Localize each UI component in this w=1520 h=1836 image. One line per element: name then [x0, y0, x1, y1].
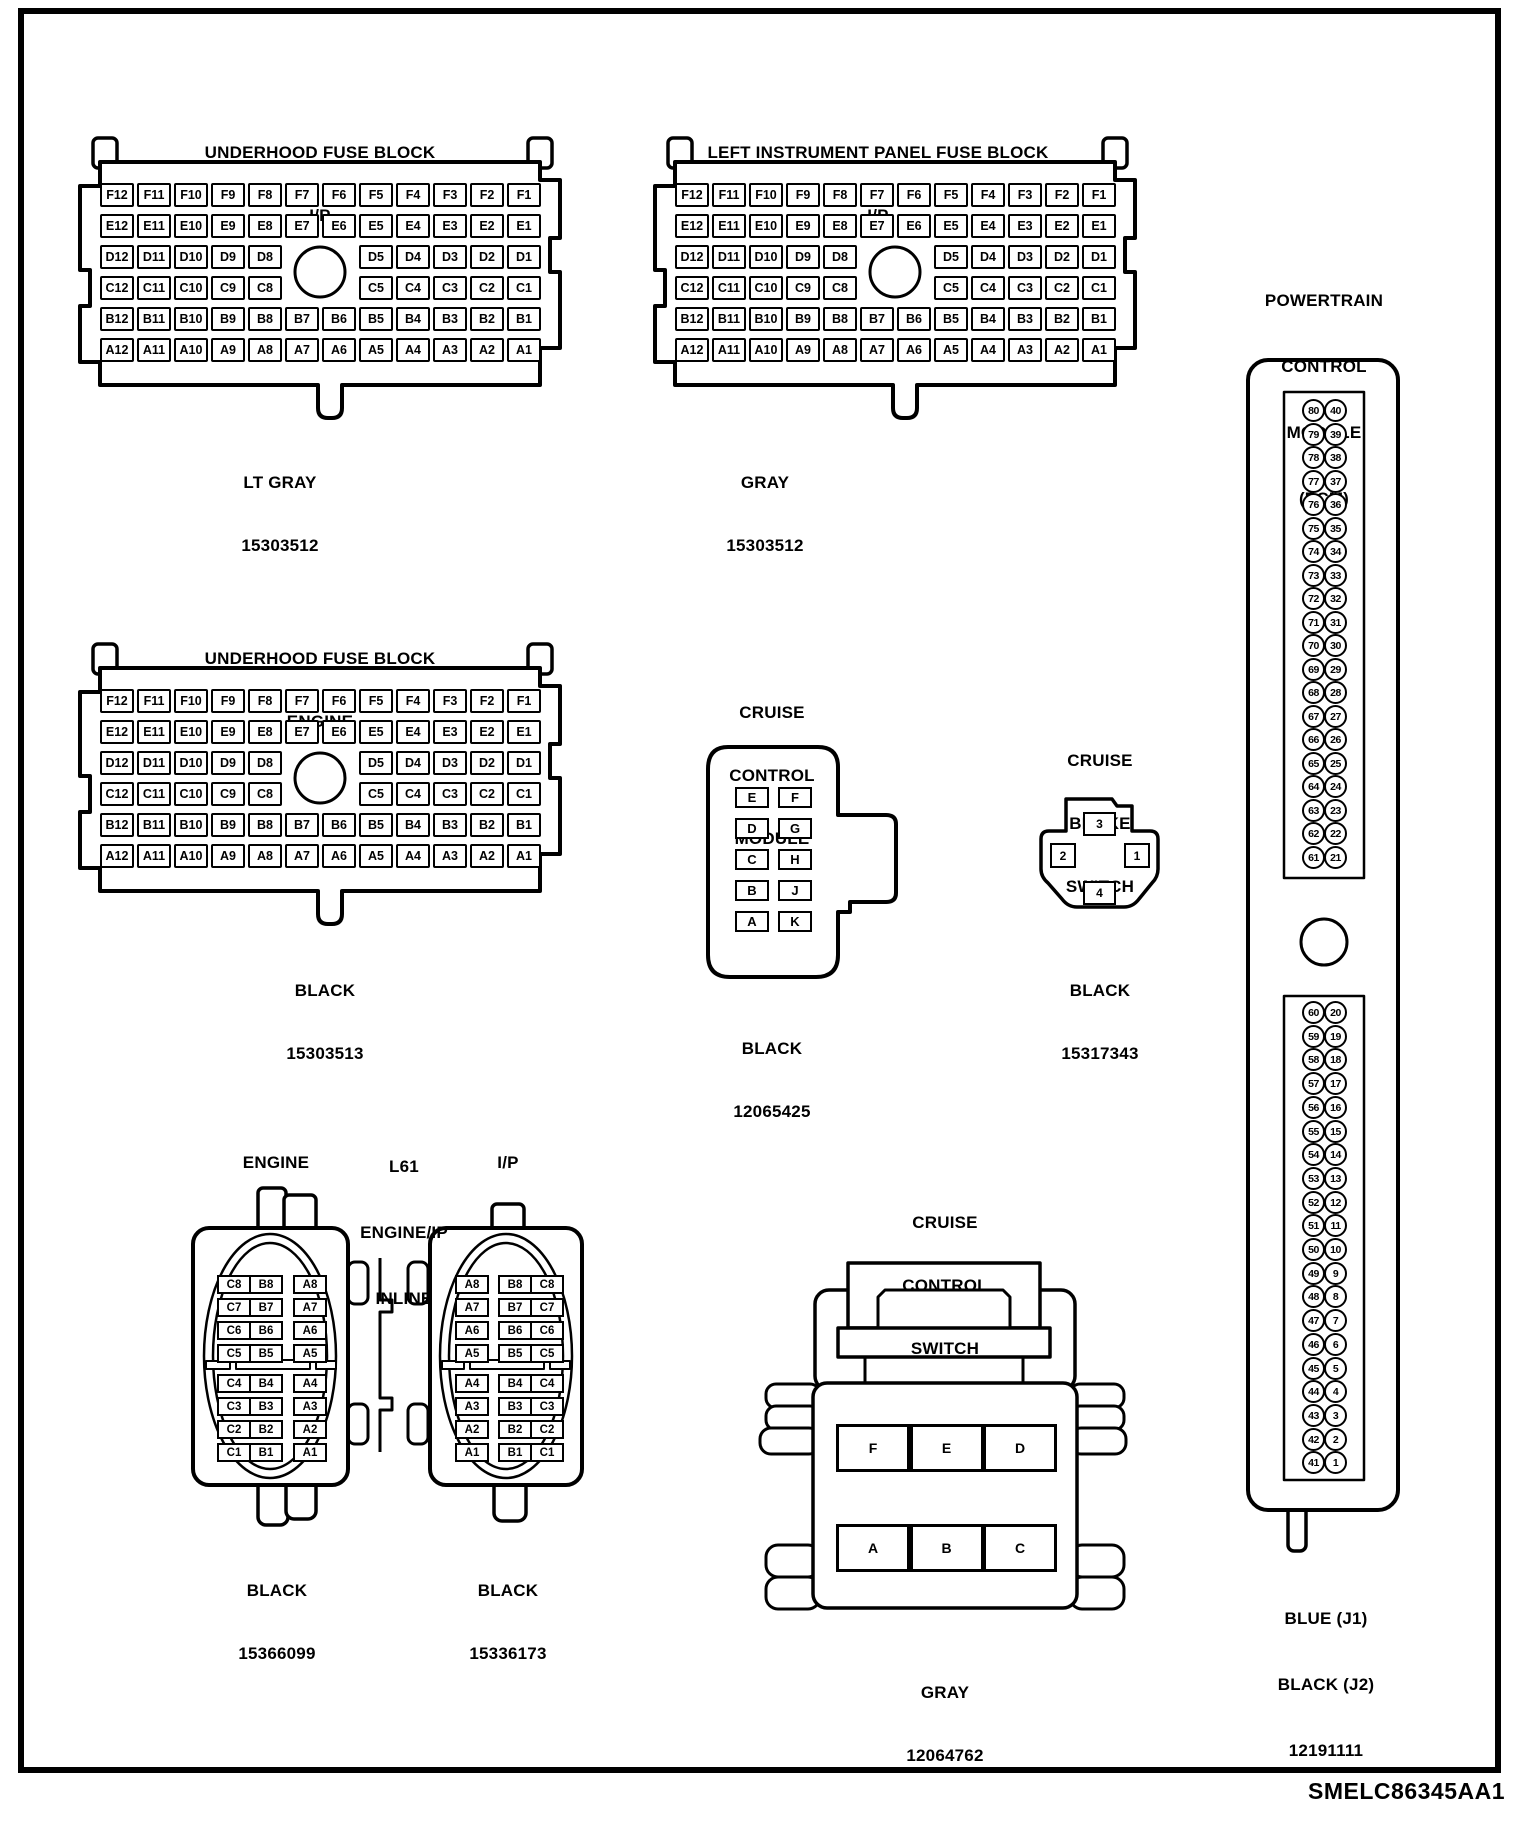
pin-b3: B3	[249, 1399, 281, 1414]
fuse-cell-b12: B12	[675, 307, 709, 331]
fuse-cell-a11: A11	[712, 338, 746, 362]
fuse-cell-b10: B10	[749, 307, 783, 331]
pcm-pin-69: 69	[1302, 658, 1325, 681]
fuse-cell-a6: A6	[897, 338, 931, 362]
pin-pair-c7-b7: C7B7	[217, 1298, 283, 1317]
fuse-cell-b12: B12	[100, 307, 134, 331]
fuse-cell-d2: D2	[470, 245, 504, 269]
pin-a8: A8	[293, 1275, 327, 1294]
fuse-cell-b4: B4	[396, 307, 430, 331]
brake-switch-pin-2: 2	[1050, 843, 1076, 868]
fuse-cell-f2: F2	[1045, 183, 1079, 207]
pin-b1: B1	[500, 1445, 530, 1460]
pin-a4: A4	[455, 1374, 489, 1393]
pcm-pin-23: 23	[1324, 799, 1347, 822]
pin-b6: B6	[249, 1323, 281, 1338]
pcm-pin-28: 28	[1324, 681, 1347, 704]
fuse-cell-a4: A4	[396, 338, 430, 362]
switch-pin-e: E	[910, 1424, 984, 1472]
pin-a6: A6	[293, 1321, 327, 1340]
pcm-pin-14: 14	[1324, 1143, 1347, 1166]
fuse-cell-e9: E9	[211, 214, 245, 238]
fuse-cell-c5: C5	[359, 276, 393, 300]
pcm-pin-58: 58	[1302, 1048, 1325, 1071]
connector-part-number: 15303512	[665, 535, 865, 556]
fuse-cell-f3: F3	[433, 183, 467, 207]
fuse-cell-a4: A4	[971, 338, 1005, 362]
connector-color-label: GRAY	[845, 1682, 1045, 1703]
fuse-cell-b3: B3	[1008, 307, 1042, 331]
pin-b1: B1	[249, 1445, 281, 1460]
pcm-pin-pair: 8040	[1302, 399, 1347, 422]
pcm-pin-29: 29	[1324, 658, 1347, 681]
pcm-pin-pair: 433	[1302, 1404, 1347, 1427]
module-pin-e: E	[735, 787, 769, 808]
pcm-pin-pair: 5414	[1302, 1143, 1347, 1166]
pin-pair-b3-c3: B3C3	[498, 1397, 564, 1416]
fuse-cell-c1: C1	[507, 276, 541, 300]
module-pin-g: G	[778, 818, 812, 839]
pcm-pin-57: 57	[1302, 1072, 1325, 1095]
pcm-pin-56: 56	[1302, 1096, 1325, 1119]
fuse-cell-a12: A12	[100, 338, 134, 362]
brake-switch-pin-3: 3	[1083, 812, 1116, 836]
pcm-pin-44: 44	[1302, 1380, 1325, 1403]
pin-b4: B4	[500, 1376, 530, 1391]
fuse-cell-f8: F8	[823, 183, 857, 207]
pcm-pin-pair: 422	[1302, 1428, 1347, 1451]
pcm-j2-pin-column: 6020591958185717561655155414531352125111…	[1302, 1001, 1348, 1476]
fuse-cell-a12: A12	[100, 844, 134, 868]
fuse-cell-f9: F9	[786, 183, 820, 207]
title-line: CONTROL	[672, 765, 872, 786]
engine-connector-label: BLACK 15366099	[177, 1538, 377, 1706]
pcm-pin-16: 16	[1324, 1096, 1347, 1119]
pin-c7: C7	[530, 1300, 562, 1315]
pcm-pin-pair: 7535	[1302, 517, 1347, 540]
fuse-cell-c11: C11	[712, 276, 746, 300]
pcm-pin-73: 73	[1302, 564, 1325, 587]
fuse-cell-b2: B2	[470, 813, 504, 837]
cruise-control-switch-label: GRAY 12064762	[845, 1640, 1045, 1808]
fuse-cell-b4: B4	[396, 813, 430, 837]
fuse-cell-a8: A8	[248, 338, 282, 362]
fuse-cell-e7: E7	[285, 720, 319, 744]
fuse-cell-f10: F10	[749, 183, 783, 207]
pcm-pin-pair: 455	[1302, 1357, 1347, 1380]
fuse-cell-e1: E1	[507, 720, 541, 744]
fuse-cell-c10: C10	[749, 276, 783, 300]
fuse-cell-a6: A6	[322, 844, 356, 868]
fuse-cell-c9: C9	[786, 276, 820, 300]
fuse-cell-a2: A2	[470, 844, 504, 868]
fuse-cell-b7: B7	[285, 307, 319, 331]
pin-pair-c2-b2: C2B2	[217, 1420, 283, 1439]
fuse-cell-f9: F9	[211, 689, 245, 713]
fuse-cell-d2: D2	[470, 751, 504, 775]
fuse-cell-a8: A8	[248, 844, 282, 868]
pin-a4: A4	[293, 1374, 327, 1393]
connector-part-number: 12064762	[845, 1745, 1045, 1766]
pin-a1: A1	[455, 1443, 489, 1462]
pcm-pin-pair: 7232	[1302, 587, 1347, 610]
fuse-cell-b10: B10	[174, 307, 208, 331]
fuse-cell-e10: E10	[174, 720, 208, 744]
pcm-pin-pair: 5111	[1302, 1214, 1347, 1237]
pcm-pin-5: 5	[1324, 1357, 1347, 1380]
fuse-cell-f4: F4	[396, 183, 430, 207]
fuse-cell-a2: A2	[470, 338, 504, 362]
pcm-pin-33: 33	[1324, 564, 1347, 587]
fuse-cell-b9: B9	[211, 307, 245, 331]
pcm-pin-pair: 6020	[1302, 1001, 1347, 1024]
fuse-cell-e2: E2	[470, 720, 504, 744]
pcm-pin-43: 43	[1302, 1404, 1325, 1427]
fuse-cell-e4: E4	[396, 720, 430, 744]
fuse-cell-a3: A3	[1008, 338, 1042, 362]
fuse-cell-d9: D9	[211, 245, 245, 269]
underhood-engine-fuse-grid: F12F11F10F9F8F7F6F5F4F3F2F1E12E11E10E9E8…	[80, 626, 560, 936]
connector-color-label: BLACK (J2)	[1226, 1674, 1426, 1696]
pcm-pin-22: 22	[1324, 822, 1347, 845]
fuse-cell-a6: A6	[322, 338, 356, 362]
connector-part-number: 15317343	[1000, 1043, 1200, 1064]
fuse-cell-e12: E12	[100, 720, 134, 744]
ip-connector-title: I/P	[408, 1152, 608, 1173]
pcm-index-hole	[1301, 919, 1347, 965]
pcm-pin-27: 27	[1324, 705, 1347, 728]
pcm-pin-76: 76	[1302, 493, 1325, 516]
connector-part-number: 15303512	[180, 535, 380, 556]
fuse-cell-c11: C11	[137, 276, 171, 300]
module-pin-d: D	[735, 818, 769, 839]
pin-c4: C4	[219, 1376, 249, 1391]
pin-c2: C2	[219, 1422, 249, 1437]
pcm-pin-34: 34	[1324, 540, 1347, 563]
fuse-cell-a12: A12	[675, 338, 709, 362]
fuse-cell-c10: C10	[174, 782, 208, 806]
pin-c5: C5	[530, 1346, 562, 1361]
fuse-cell-a8: A8	[823, 338, 857, 362]
fuse-cell-d1: D1	[507, 245, 541, 269]
pcm-pin-9: 9	[1324, 1262, 1347, 1285]
pcm-pin-64: 64	[1302, 775, 1325, 798]
fuse-cell-e2: E2	[470, 214, 504, 238]
fuse-cell-b5: B5	[359, 307, 393, 331]
pcm-pin-pair: 466	[1302, 1333, 1347, 1356]
pcm-pin-24: 24	[1324, 775, 1347, 798]
fuse-cell-f12: F12	[100, 689, 134, 713]
pcm-pin-12: 12	[1324, 1191, 1347, 1214]
fuse-cell-a5: A5	[359, 338, 393, 362]
fuse-cell-b6: B6	[322, 813, 356, 837]
fuse-cell-f10: F10	[174, 689, 208, 713]
fuse-cell-a2: A2	[1045, 338, 1079, 362]
fuse-cell-c9: C9	[211, 782, 245, 806]
pin-a2: A2	[455, 1420, 489, 1439]
cruise-control-switch-pins: FEDABC	[836, 1424, 1057, 1572]
module-pin-k: K	[778, 911, 812, 932]
cruise-control-module-pins: EFDGCHBJAK	[735, 787, 812, 933]
fuse-cell-c12: C12	[675, 276, 709, 300]
fuse-cell-a9: A9	[786, 338, 820, 362]
switch-pin-a: A	[836, 1524, 910, 1572]
fuse-cell-b5: B5	[359, 813, 393, 837]
pcm-pin-18: 18	[1324, 1048, 1347, 1071]
fuse-cell-a11: A11	[137, 844, 171, 868]
pcm-label: BLUE (J1) BLACK (J2) 12191111	[1226, 1564, 1426, 1806]
fuse-cell-f9: F9	[211, 183, 245, 207]
pcm-pin-80: 80	[1302, 399, 1325, 422]
fuse-cell-b2: B2	[470, 307, 504, 331]
fuse-cell-e8: E8	[248, 720, 282, 744]
fuse-cell-e6: E6	[322, 720, 356, 744]
fuse-cell-d9: D9	[211, 751, 245, 775]
fuse-cell-f6: F6	[897, 183, 931, 207]
pin-pair-b1-c1: B1C1	[498, 1443, 564, 1462]
pcm-pin-32: 32	[1324, 587, 1347, 610]
fuse-cell-c10: C10	[174, 276, 208, 300]
fuse-cell-c5: C5	[934, 276, 968, 300]
fuse-cell-e12: E12	[675, 214, 709, 238]
pin-pair-c5-b5: C5B5	[217, 1344, 283, 1363]
pin-c8: C8	[530, 1277, 562, 1292]
pcm-pin-1: 1	[1324, 1451, 1347, 1474]
fuse-cell-c2: C2	[470, 782, 504, 806]
pin-pair-b2-c2: B2C2	[498, 1420, 564, 1439]
pin-b5: B5	[249, 1346, 281, 1361]
pin-a6: A6	[455, 1321, 489, 1340]
module-pin-b: B	[735, 880, 769, 901]
pin-a3: A3	[293, 1397, 327, 1416]
fuse-cell-c3: C3	[433, 782, 467, 806]
fuse-cell-d10: D10	[749, 245, 783, 269]
pin-b4: B4	[249, 1376, 281, 1391]
pin-c8: C8	[219, 1277, 249, 1292]
fuse-cell-d3: D3	[433, 245, 467, 269]
fuse-cell-f7: F7	[285, 689, 319, 713]
pcm-pin-pair: 7333	[1302, 564, 1347, 587]
pcm-pin-4: 4	[1324, 1380, 1347, 1403]
fuse-cell-b4: B4	[971, 307, 1005, 331]
fuse-cell-e11: E11	[712, 214, 746, 238]
fuse-cell-c8: C8	[248, 782, 282, 806]
pcm-pin-pair: 6525	[1302, 752, 1347, 775]
pin-b7: B7	[249, 1300, 281, 1315]
fuse-cell-a11: A11	[137, 338, 171, 362]
fuse-cell-e5: E5	[934, 214, 968, 238]
fuse-cell-a10: A10	[749, 338, 783, 362]
fuse-cell-d10: D10	[174, 751, 208, 775]
fuse-cell-a4: A4	[396, 844, 430, 868]
pcm-pin-49: 49	[1302, 1262, 1325, 1285]
fuse-cell-b7: B7	[285, 813, 319, 837]
brake-switch-pin-1: 1	[1124, 843, 1150, 868]
pcm-pin-71: 71	[1302, 611, 1325, 634]
pcm-pin-30: 30	[1324, 634, 1347, 657]
pcm-pin-19: 19	[1324, 1025, 1347, 1048]
fuse-cell-f2: F2	[470, 183, 504, 207]
pin-b3: B3	[500, 1399, 530, 1414]
fuse-cell-e3: E3	[433, 214, 467, 238]
fuse-cell-a5: A5	[934, 338, 968, 362]
pcm-pin-41: 41	[1302, 1451, 1325, 1474]
pin-pair-b8-c8: B8C8	[498, 1275, 564, 1294]
fuse-cell-e4: E4	[396, 214, 430, 238]
pcm-pin-pair: 6323	[1302, 799, 1347, 822]
pin-c5: C5	[219, 1346, 249, 1361]
pin-pair-b4-c4: B4C4	[498, 1374, 564, 1393]
pin-c4: C4	[530, 1376, 562, 1391]
engine-connector-pins: C8B8A8C7B7A7C6B6A6C5B5A5C4B4A4C3B3A3C2B2…	[160, 1180, 390, 1500]
title-line: POWERTRAIN	[1224, 290, 1424, 312]
fuse-cell-c1: C1	[507, 782, 541, 806]
fuse-cell-e11: E11	[137, 214, 171, 238]
pcm-pin-68: 68	[1302, 681, 1325, 704]
pcm-pin-pair: 5919	[1302, 1025, 1347, 1048]
pcm-pin-63: 63	[1302, 799, 1325, 822]
connector-color-label: BLACK	[177, 1580, 377, 1601]
fuse-cell-a10: A10	[174, 338, 208, 362]
fuse-cell-a7: A7	[285, 844, 319, 868]
pcm-pin-15: 15	[1324, 1120, 1347, 1143]
pcm-pin-13: 13	[1324, 1167, 1347, 1190]
switch-pin-c: C	[983, 1524, 1057, 1572]
pin-a1: A1	[293, 1443, 327, 1462]
pin-a3: A3	[455, 1397, 489, 1416]
fuse-cell-d5: D5	[934, 245, 968, 269]
pcm-pin-pair: 5515	[1302, 1120, 1347, 1143]
fuse-cell-d10: D10	[174, 245, 208, 269]
fuse-cell-b11: B11	[137, 307, 171, 331]
pin-c3: C3	[530, 1399, 562, 1414]
fuse-cell-e6: E6	[897, 214, 931, 238]
underhood-engine-fuse-block-label: BLACK 15303513	[225, 938, 425, 1106]
fuse-cell-b7: B7	[860, 307, 894, 331]
fuse-cell-e10: E10	[749, 214, 783, 238]
fuse-cell-f4: F4	[971, 183, 1005, 207]
pcm-pin-39: 39	[1324, 423, 1347, 446]
fuse-cell-d8: D8	[248, 751, 282, 775]
fuse-cell-f4: F4	[396, 689, 430, 713]
pcm-pin-pair: 7939	[1302, 423, 1347, 446]
fuse-cell-b11: B11	[137, 813, 171, 837]
pin-a2: A2	[293, 1420, 327, 1439]
fuse-cell-e10: E10	[174, 214, 208, 238]
fuse-cell-d3: D3	[433, 751, 467, 775]
switch-pin-b: B	[910, 1524, 984, 1572]
fuse-cell-f7: F7	[860, 183, 894, 207]
fuse-cell-e7: E7	[860, 214, 894, 238]
fuse-cell-b11: B11	[712, 307, 746, 331]
pin-c1: C1	[530, 1445, 562, 1460]
pin-pair-c3-b3: C3B3	[217, 1397, 283, 1416]
title-line: CRUISE	[1000, 750, 1200, 771]
cruise-brake-switch-label: BLACK 15317343	[1000, 938, 1200, 1106]
fuse-cell-d11: D11	[137, 245, 171, 269]
pcm-pin-40: 40	[1324, 399, 1347, 422]
fuse-cell-b6: B6	[322, 307, 356, 331]
pcm-pin-pair: 6222	[1302, 822, 1347, 845]
fuse-cell-d1: D1	[1082, 245, 1116, 269]
fuse-cell-f1: F1	[507, 689, 541, 713]
pin-pair-c4-b4: C4B4	[217, 1374, 283, 1393]
pcm-pin-17: 17	[1324, 1072, 1347, 1095]
fuse-cell-a7: A7	[860, 338, 894, 362]
connector-part-number: 12065425	[672, 1101, 872, 1122]
pcm-pin-75: 75	[1302, 517, 1325, 540]
fuse-cell-b8: B8	[248, 307, 282, 331]
fuse-cell-a1: A1	[507, 844, 541, 868]
pcm-pin-45: 45	[1302, 1357, 1325, 1380]
title-line: SWITCH	[845, 1338, 1045, 1359]
pcm-pin-35: 35	[1324, 517, 1347, 540]
fuse-cell-f5: F5	[359, 183, 393, 207]
pcm-pin-pair: 5313	[1302, 1167, 1347, 1190]
fuse-cell-a9: A9	[211, 844, 245, 868]
pcm-pin-37: 37	[1324, 470, 1347, 493]
fuse-cell-e8: E8	[248, 214, 282, 238]
left-ip-fuse-block-label: GRAY 15303512	[665, 430, 865, 598]
connector-part-number: 12191111	[1226, 1740, 1426, 1762]
switch-pin-d: D	[983, 1424, 1057, 1472]
fuse-cell-d12: D12	[675, 245, 709, 269]
pcm-pin-67: 67	[1302, 705, 1325, 728]
pcm-pin-10: 10	[1324, 1238, 1347, 1261]
fuse-cell-f3: F3	[1008, 183, 1042, 207]
pin-c2: C2	[530, 1422, 562, 1437]
fuse-cell-c1: C1	[1082, 276, 1116, 300]
fuse-cell-b9: B9	[211, 813, 245, 837]
pin-c3: C3	[219, 1399, 249, 1414]
cruise-control-switch-title: CRUISE CONTROL SWITCH	[845, 1170, 1045, 1401]
pcm-pin-42: 42	[1302, 1428, 1325, 1451]
pcm-pin-77: 77	[1302, 470, 1325, 493]
fuse-cell-c12: C12	[100, 276, 134, 300]
pin-pair-b7-c7: B7C7	[498, 1298, 564, 1317]
fuse-cell-b9: B9	[786, 307, 820, 331]
figure-id: SMELC86345AA1	[1140, 1778, 1505, 1805]
pin-b8: B8	[500, 1277, 530, 1292]
fuse-cell-d5: D5	[359, 245, 393, 269]
fuse-cell-b5: B5	[934, 307, 968, 331]
pcm-pin-74: 74	[1302, 540, 1325, 563]
fuse-cell-f2: F2	[470, 689, 504, 713]
fuse-cell-c2: C2	[1045, 276, 1079, 300]
title-line: CRUISE	[845, 1212, 1045, 1233]
pcm-pin-pair: 5717	[1302, 1072, 1347, 1095]
pcm-j1-pin-column: 8040793978387737763675357434733372327131…	[1302, 399, 1348, 871]
fuse-cell-b1: B1	[507, 307, 541, 331]
fuse-cell-c9: C9	[211, 276, 245, 300]
connector-color-label: GRAY	[665, 472, 865, 493]
pin-c7: C7	[219, 1300, 249, 1315]
pcm-pin-50: 50	[1302, 1238, 1325, 1261]
ip-connector-pins: A8B8C8A7B7C7A6B6C6A5B5C5A4B4C4A3B3C3A2B2…	[408, 1180, 608, 1500]
pin-b7: B7	[500, 1300, 530, 1315]
pcm-pin-pair: 6828	[1302, 681, 1347, 704]
connector-color-label: LT GRAY	[180, 472, 380, 493]
fuse-cell-d2: D2	[1045, 245, 1079, 269]
pcm-pin-pair: 7838	[1302, 446, 1347, 469]
pcm-pin-55: 55	[1302, 1120, 1325, 1143]
pcm-pin-20: 20	[1324, 1001, 1347, 1024]
fuse-cell-c4: C4	[396, 276, 430, 300]
fuse-cell-b3: B3	[433, 813, 467, 837]
module-pin-c: C	[735, 849, 769, 870]
fuse-cell-d11: D11	[137, 751, 171, 775]
fuse-cell-d4: D4	[971, 245, 1005, 269]
